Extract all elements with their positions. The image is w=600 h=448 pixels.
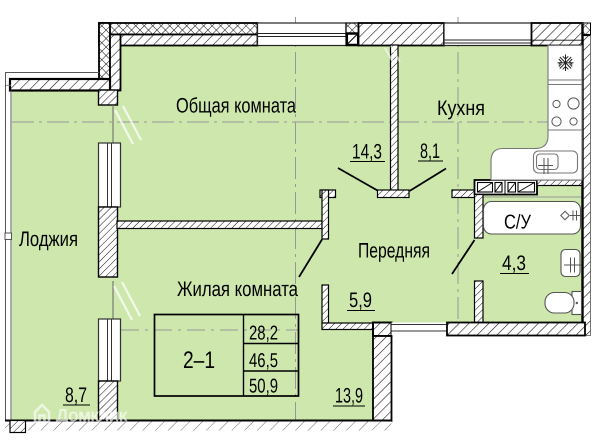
- svg-text:Передняя: Передняя: [358, 240, 430, 263]
- svg-text:Лоджия: Лоджия: [19, 228, 78, 251]
- svg-text:2–1: 2–1: [183, 347, 215, 374]
- svg-text:50,9: 50,9: [249, 376, 278, 398]
- svg-text:Домклик: Домклик: [56, 406, 128, 425]
- svg-text:Кухня: Кухня: [437, 97, 485, 120]
- svg-text:46,5: 46,5: [249, 350, 278, 372]
- svg-text:С/У: С/У: [504, 212, 531, 234]
- svg-text:28,2: 28,2: [249, 323, 278, 345]
- svg-text:13,9: 13,9: [335, 385, 363, 408]
- svg-text:8,1: 8,1: [420, 140, 440, 163]
- svg-text:Общая комната: Общая комната: [176, 95, 296, 118]
- svg-text:5,9: 5,9: [349, 289, 372, 312]
- svg-text:14,3: 14,3: [352, 141, 382, 164]
- svg-text:4,3: 4,3: [502, 252, 526, 275]
- svg-text:Жилая комната: Жилая комната: [177, 278, 298, 301]
- svg-text:8,7: 8,7: [65, 384, 87, 407]
